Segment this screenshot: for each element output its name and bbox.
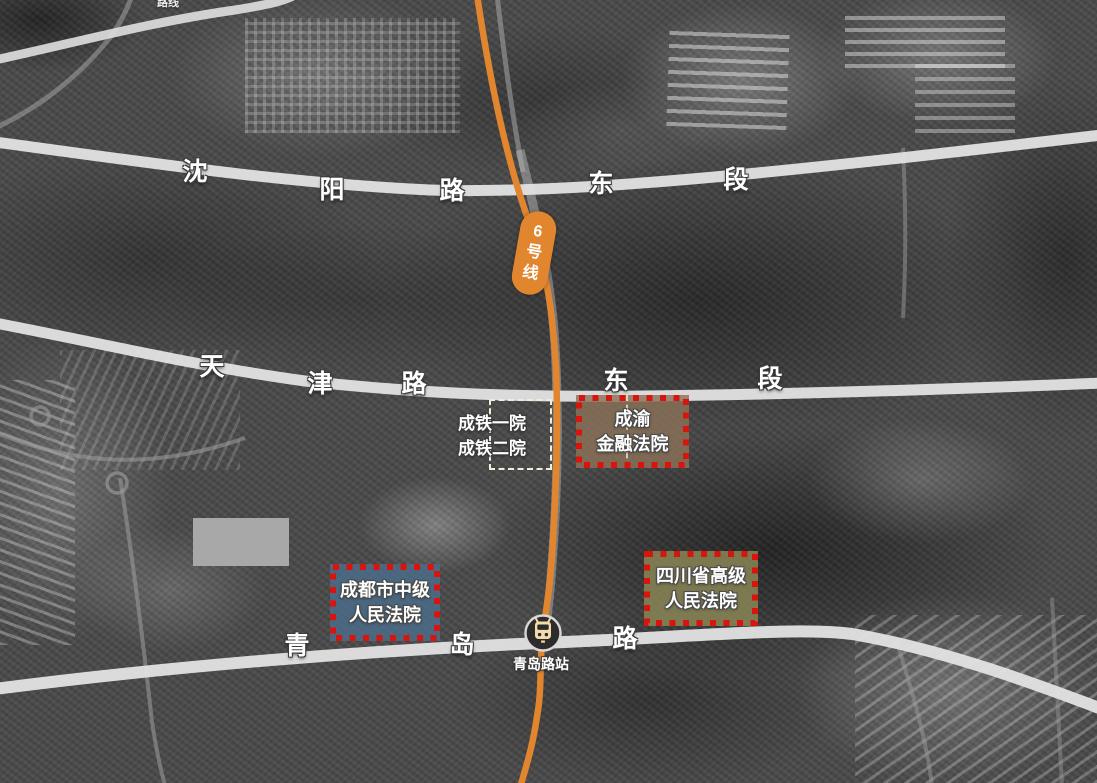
chengtie-courts-label-line2: 成铁二院: [452, 436, 532, 461]
minor-road: [0, 432, 245, 460]
road-label-char: 段: [757, 359, 782, 395]
road-label-char: 路: [439, 171, 464, 207]
satellite-map: 路线 沈 阳 路 东 段 天 津 路 东 段 青 岛 路 成铁一院 成铁二院 成…: [0, 0, 1097, 783]
top-partial-label: 路线: [157, 0, 179, 10]
road-shenyang: [0, 135, 1097, 191]
road-label-char: 沈: [182, 152, 207, 188]
sichuan-higher-court-label: 四川省高级 人民法院: [644, 551, 758, 626]
label-line: 人民法院: [349, 603, 421, 628]
badge-char: 号: [525, 244, 544, 263]
chengyu-financial-court-box: 成渝 金融法院: [576, 395, 689, 468]
road-topleft-curve: [0, 0, 295, 60]
label-line: 成都市中级: [340, 578, 430, 603]
minor-road: [898, 646, 932, 783]
chengyu-financial-court-label: 成渝 金融法院: [576, 395, 689, 468]
road-tianjin: [0, 323, 1097, 396]
label-line: 成渝: [615, 407, 651, 432]
metro-station-label: 青岛路站: [513, 654, 569, 674]
road-label-char: 东: [603, 361, 628, 397]
road-label-char: 东: [588, 164, 613, 200]
roundabout: [107, 473, 127, 493]
sichuan-higher-court-box: 四川省高级 人民法院: [644, 551, 758, 626]
minor-road: [497, 0, 523, 172]
minor-road: [120, 478, 165, 783]
road-label-char: 岛: [449, 625, 474, 661]
chengdu-intermediate-court-box: 成都市中级 人民法院: [330, 564, 440, 641]
road-label-char: 天: [199, 347, 224, 383]
redacted-area: [193, 518, 289, 566]
metro-station-icon: [523, 613, 563, 653]
badge-char: 线: [521, 264, 540, 283]
road-label-char: 阳: [319, 170, 344, 206]
label-line: 人民法院: [665, 589, 737, 614]
road-label-char: 路: [401, 364, 426, 400]
chengtie-courts-label-line1: 成铁一院: [452, 411, 532, 436]
road-label-char: 津: [307, 364, 332, 400]
road-label-char: 段: [723, 160, 748, 196]
label-line: 金融法院: [597, 432, 669, 457]
minor-road: [903, 148, 905, 318]
badge-char: 6: [532, 224, 544, 241]
chengtie-courts-label: 成铁一院 成铁二院: [452, 411, 532, 461]
road-label-char: 青: [284, 626, 309, 662]
roundabout: [31, 407, 49, 425]
road-label-char: 路: [612, 619, 637, 655]
minor-road: [0, 0, 132, 128]
chengdu-intermediate-court-label: 成都市中级 人民法院: [330, 564, 440, 641]
label-line: 四川省高级: [656, 564, 746, 589]
